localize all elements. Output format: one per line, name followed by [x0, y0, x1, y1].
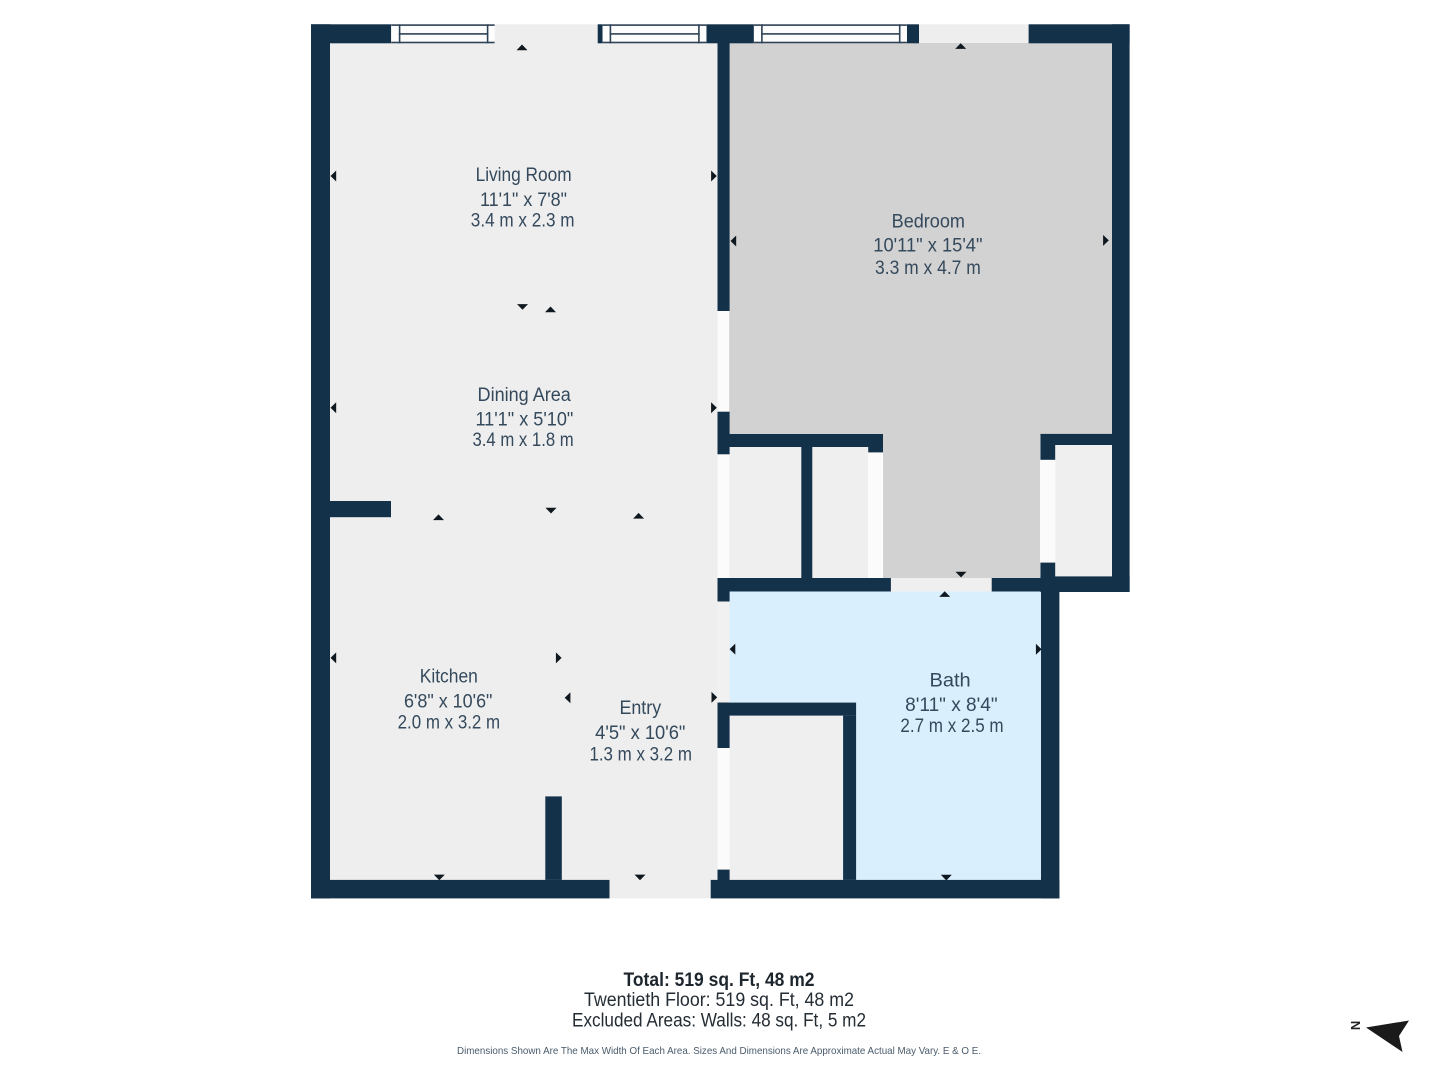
svg-text:2.0 m x 3.2 m: 2.0 m x 3.2 m — [398, 713, 501, 734]
svg-text:Dining Area: Dining Area — [478, 385, 572, 406]
svg-text:1.3 m x 3.2 m: 1.3 m x 3.2 m — [589, 744, 692, 765]
svg-text:Excluded Areas: Walls: 48 sq.: Excluded Areas: Walls: 48 sq. Ft, 5 m2 — [572, 1010, 866, 1031]
svg-text:8'11" x 8'4": 8'11" x 8'4" — [905, 695, 997, 716]
svg-text:11'1" x 7'8": 11'1" x 7'8" — [480, 190, 567, 211]
svg-text:11'1" x 5'10": 11'1" x 5'10" — [475, 410, 573, 431]
svg-text:Bedroom: Bedroom — [892, 211, 965, 232]
svg-text:2.7 m x 2.5 m: 2.7 m x 2.5 m — [900, 716, 1003, 737]
svg-text:Bath: Bath — [930, 671, 971, 692]
svg-text:Twentieth Floor: 519 sq. Ft, 4: Twentieth Floor: 519 sq. Ft, 48 m2 — [584, 990, 854, 1011]
svg-text:4'5" x 10'6": 4'5" x 10'6" — [595, 723, 685, 744]
svg-text:6'8" x 10'6": 6'8" x 10'6" — [404, 692, 493, 713]
svg-text:N: N — [1348, 1021, 1363, 1030]
svg-text:Total: 519 sq. Ft, 48 m2: Total: 519 sq. Ft, 48 m2 — [624, 970, 815, 991]
svg-text:Dimensions Shown Are The Max W: Dimensions Shown Are The Max Width Of Ea… — [457, 1045, 981, 1057]
svg-text:Living Room: Living Room — [476, 165, 572, 186]
svg-text:3.3 m x 4.7 m: 3.3 m x 4.7 m — [875, 258, 981, 279]
svg-text:Kitchen: Kitchen — [420, 667, 478, 688]
svg-text:10'11" x 15'4": 10'11" x 15'4" — [873, 236, 982, 257]
svg-text:Entry: Entry — [619, 698, 661, 719]
svg-text:3.4 m x 1.8 m: 3.4 m x 1.8 m — [473, 430, 574, 451]
svg-text:3.4 m x 2.3 m: 3.4 m x 2.3 m — [471, 210, 575, 231]
